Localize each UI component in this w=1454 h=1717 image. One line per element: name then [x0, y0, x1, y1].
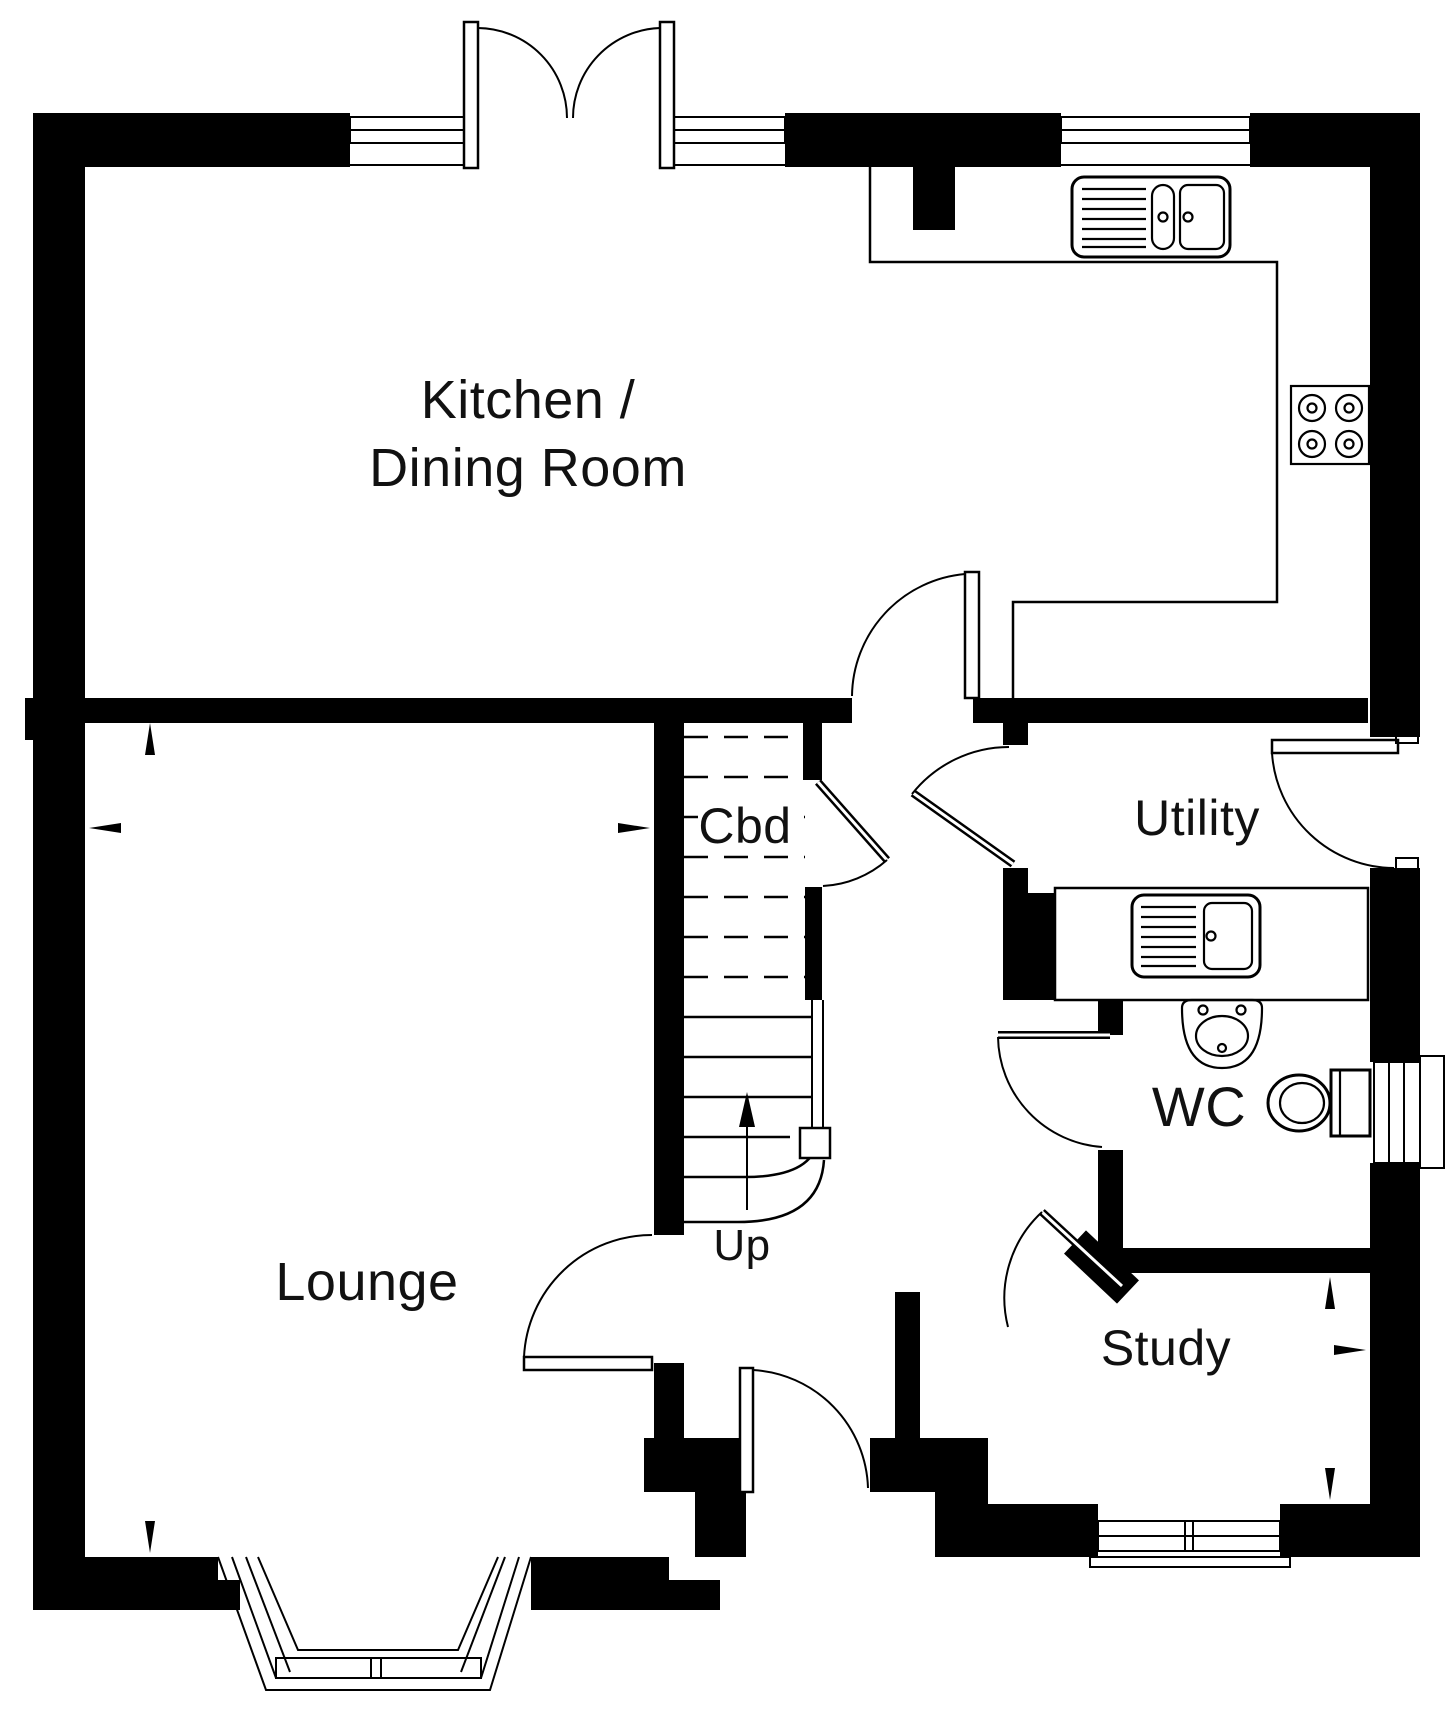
french-doors-icon [464, 22, 674, 168]
study-arrow-up-icon [1325, 1277, 1335, 1309]
wc-door-icon [998, 1035, 1110, 1147]
study-arrow-down-icon [1325, 1468, 1335, 1500]
lounge-arrow-up-icon [145, 723, 155, 755]
wc-window-icon [1374, 1056, 1444, 1168]
kitchen-fixtures [870, 167, 1369, 698]
lounge-arrow-right-icon [618, 823, 650, 833]
lounge-arrow-down-icon [145, 1521, 155, 1553]
utility-sink-icon [1132, 895, 1260, 977]
kitchen-window-left-icon [344, 117, 471, 165]
basin-icon [1182, 1000, 1262, 1068]
exterior-walls [25, 113, 1420, 1610]
lounge-label: Lounge [275, 1252, 458, 1312]
stairs-up-label: Up [713, 1221, 770, 1270]
utility-door-icon [912, 747, 1013, 864]
up-arrow-icon [739, 1092, 755, 1210]
utility-fixtures [1055, 888, 1368, 1000]
front-door-icon [740, 1368, 868, 1492]
study-window-icon [1090, 1521, 1290, 1567]
utility-label: Utility [1134, 790, 1260, 846]
kitchen-dining-label-line1: Kitchen / [421, 370, 636, 430]
cupboard-label: Cbd [698, 798, 791, 854]
windows [344, 117, 1444, 1567]
lounge-door-icon [524, 1235, 652, 1370]
floor-plan-svg: Kitchen / Dining Room Lounge Cbd Utility… [0, 0, 1454, 1717]
toilet-icon [1268, 1070, 1370, 1136]
kitchen-dining-label-line2: Dining Room [369, 438, 687, 498]
kitchen-window-right-icon [1055, 117, 1256, 165]
kitchen-sink-icon [1072, 177, 1230, 257]
floor-plan-page: Kitchen / Dining Room Lounge Cbd Utility… [0, 0, 1454, 1717]
lounge-arrow-left-icon [89, 823, 121, 833]
hob-icon [1291, 386, 1369, 464]
cupboard-door-icon [818, 782, 887, 886]
kitchen-door-icon [852, 572, 979, 698]
wc-label: WC [1152, 1075, 1246, 1138]
study-arrow-right-icon [1334, 1345, 1366, 1355]
bay-window-icon [218, 1557, 531, 1690]
study-label: Study [1101, 1320, 1231, 1376]
kitchen-window-mid-icon [667, 117, 791, 165]
utility-external-door-icon [1272, 731, 1418, 870]
